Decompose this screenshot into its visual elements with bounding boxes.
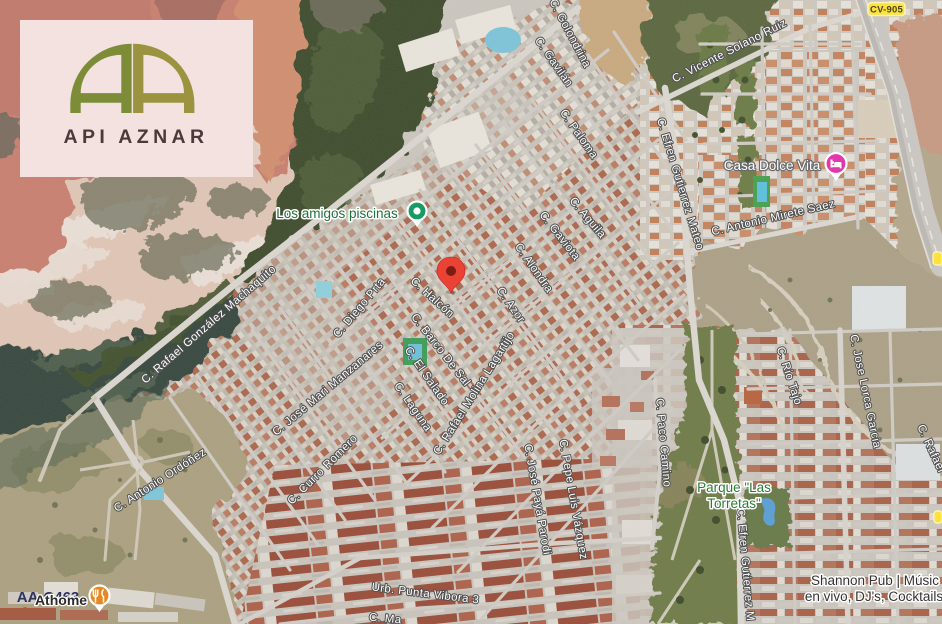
svg-text:Parque "Las: Parque "Las: [697, 480, 771, 495]
svg-text:en vivo, DJ's, Cocktails: en vivo, DJ's, Cocktails: [805, 589, 942, 604]
svg-text:Shannon Pub | Músic: Shannon Pub | Músic: [811, 573, 939, 588]
svg-text:Torretas": Torretas": [707, 496, 761, 511]
svg-text:CV-905: CV-905: [870, 5, 903, 16]
svg-text:C. Ma: C. Ma: [368, 612, 402, 624]
svg-text:Los amigos piscinas: Los amigos piscinas: [276, 206, 398, 221]
svg-text:Casa Dolce Vita: Casa Dolce Vita: [724, 158, 821, 173]
svg-text:API AZNAR: API AZNAR: [63, 126, 208, 148]
svg-text:Athome: Athome: [35, 592, 87, 608]
